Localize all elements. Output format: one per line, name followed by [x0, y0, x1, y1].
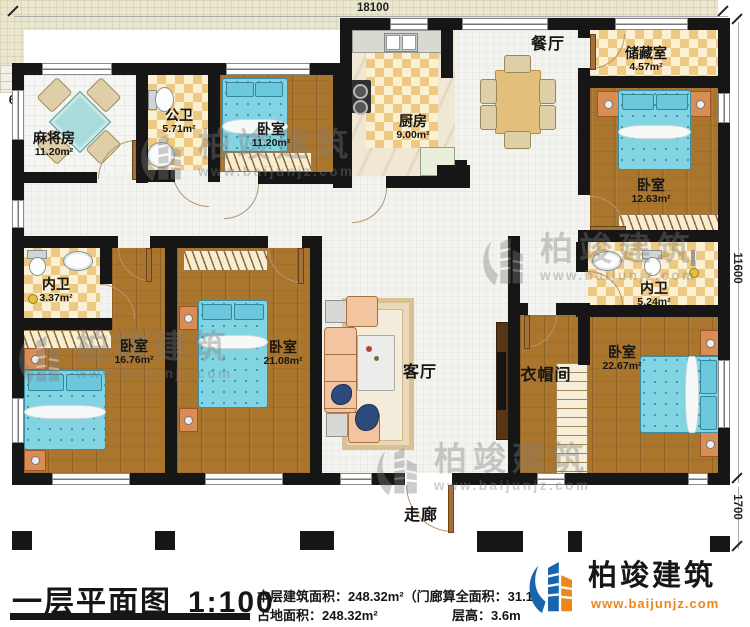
chair	[504, 131, 531, 149]
room-label-storage: 储藏室4.57m²	[606, 46, 686, 73]
burner	[353, 84, 368, 99]
chair	[539, 79, 556, 104]
room-label-kitchen: 厨房9.00m²	[373, 114, 453, 141]
wall-segment	[578, 30, 590, 38]
window	[688, 473, 708, 485]
room-label-bedroom1: 卧室11.20m²	[231, 122, 311, 149]
ground-area-text: 占地面积：248.32m²	[257, 605, 378, 624]
room-label-corridor: 走廊	[391, 507, 451, 525]
window	[340, 473, 372, 485]
wall-segment	[302, 236, 310, 248]
wall-segment	[12, 172, 97, 183]
bed	[618, 90, 691, 170]
wall-segment	[590, 76, 730, 88]
door-leaf	[524, 315, 530, 349]
porch-pillar	[710, 536, 730, 552]
pillow	[700, 360, 717, 394]
floor-area-text: 本层建筑面积：248.32m²（门廊算全面积：31.1	[257, 586, 533, 605]
room-label-living: 客厅	[390, 364, 450, 382]
wall-segment	[455, 160, 467, 188]
title-underline	[10, 613, 250, 620]
wall-segment	[556, 303, 590, 315]
room-label-dining: 餐厅	[518, 36, 578, 54]
watermark-logo-icon	[14, 330, 70, 386]
porch-pillar	[477, 531, 523, 552]
dimension-line-top	[14, 16, 728, 17]
room-label-bedroom5: 卧室22.67m²	[582, 345, 662, 372]
wall-segment	[100, 248, 112, 284]
bed-sheet	[618, 125, 691, 139]
wall-segment	[177, 236, 268, 248]
chair	[539, 105, 556, 130]
dimension-top: 18100	[343, 2, 403, 14]
watermark-logo-icon	[478, 232, 534, 288]
window	[226, 63, 310, 75]
door-leaf	[146, 248, 152, 282]
nightstand	[179, 408, 198, 432]
window	[462, 18, 548, 30]
wall-segment	[578, 68, 590, 88]
window	[390, 18, 428, 30]
porch-pillar	[568, 531, 582, 552]
wall-segment	[578, 88, 590, 195]
bed-sheet	[24, 405, 106, 419]
sink-icon	[63, 251, 93, 271]
room-label-bedroom3: 卧室16.76m²	[94, 339, 174, 366]
floor-height-text: 层高：3.6m	[452, 605, 521, 624]
floor-plan-page: 麻将房11.20m² 公卫5.71m² 卧室11.20m² 厨房9.00m² 餐…	[0, 0, 750, 627]
pillow	[700, 396, 717, 430]
window	[718, 93, 730, 123]
tv-icon	[497, 352, 506, 410]
pillow	[234, 304, 264, 320]
wall-segment	[520, 303, 528, 315]
room-label-inner-bath1: 内卫3.37m²	[26, 277, 86, 304]
chair	[480, 105, 497, 130]
watermark: 柏竣建筑www.baijunjz.com	[372, 442, 591, 498]
wall-segment	[112, 236, 118, 248]
pillow	[622, 94, 654, 110]
room-label-cloakroom: 衣帽间	[506, 367, 586, 385]
nightstand	[689, 91, 711, 117]
room-label-public-bath: 公卫5.71m²	[149, 108, 209, 135]
dining-table	[495, 70, 541, 134]
burner	[353, 100, 368, 115]
chair	[480, 79, 497, 104]
window	[615, 18, 688, 30]
watermark-logo-icon	[136, 128, 192, 184]
bed-sheet	[685, 356, 699, 433]
dimension-tick	[731, 13, 742, 24]
nightstand	[179, 306, 198, 330]
pillow	[226, 82, 254, 97]
armchair	[346, 296, 378, 327]
pillow	[656, 94, 688, 110]
side-table	[326, 413, 348, 437]
floor-plan-canvas: 麻将房11.20m² 公卫5.71m² 卧室11.20m² 厨房9.00m² 餐…	[0, 0, 750, 627]
dimension-right-lower: 1700	[731, 485, 743, 529]
side-table	[325, 300, 347, 323]
dimension-tick	[717, 5, 728, 16]
exterior-ground	[24, 30, 340, 63]
porch-pillar	[300, 531, 334, 550]
chair	[504, 55, 531, 73]
door-leaf	[590, 34, 596, 70]
toilet-icon	[29, 257, 46, 276]
watermark-logo-icon	[372, 442, 428, 498]
porch-pillar	[155, 531, 175, 550]
flower-decor	[374, 356, 379, 361]
porch-pillar	[12, 531, 32, 550]
wall-segment	[441, 30, 453, 78]
window	[12, 398, 24, 443]
door-leaf	[298, 248, 304, 284]
dimension-tick	[731, 472, 742, 483]
pillow	[255, 82, 283, 97]
kitchen-sink	[384, 33, 418, 52]
room-label-inner-bath2: 内卫5.24m²	[624, 281, 684, 308]
window	[12, 200, 24, 228]
nightstand	[597, 91, 619, 117]
dimension-tick	[731, 540, 742, 551]
coffee-table	[357, 335, 395, 391]
wardrobe	[183, 250, 268, 271]
room-label-bedroom2: 卧室12.63m²	[611, 178, 691, 205]
room-label-bedroom4: 卧室21.08m²	[243, 340, 323, 367]
window	[718, 360, 730, 428]
brand-name: 柏竣建筑	[588, 562, 716, 591]
window	[205, 473, 283, 485]
window	[52, 473, 130, 485]
room-label-mahjong: 麻将房11.20m²	[18, 131, 90, 158]
nightstand	[24, 450, 46, 471]
brand-logo-icon	[524, 556, 584, 616]
flower-decor	[366, 346, 372, 352]
window	[42, 63, 112, 75]
brand-logo	[524, 556, 584, 621]
pillow	[202, 304, 232, 320]
dimension-right-upper: 11600	[731, 241, 743, 295]
wall-segment	[12, 236, 112, 248]
brand-website: www.baijunjz.com	[591, 596, 719, 611]
